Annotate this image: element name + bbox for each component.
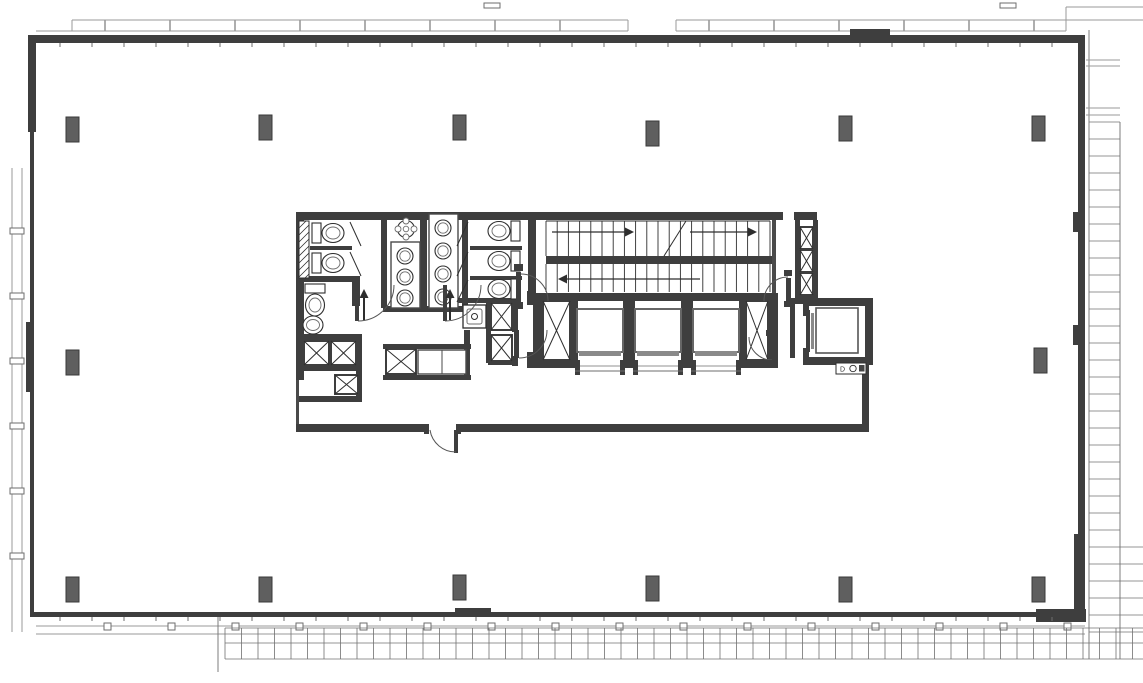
- perimeter-wall: [850, 29, 890, 36]
- perimeter-wall: [1078, 40, 1085, 616]
- structural-column: [66, 117, 79, 142]
- ornate-sink-petal: [403, 234, 409, 240]
- perimeter-wall: [28, 35, 1085, 43]
- perimeter-wall: [30, 612, 1085, 617]
- freight-elevator-door-panel: [806, 310, 810, 352]
- core-wall: [383, 375, 471, 380]
- door-leaf: [786, 278, 791, 301]
- bottom-rail-post: [872, 623, 879, 630]
- core-wall: [296, 424, 869, 432]
- bottom-rail-post: [168, 623, 175, 630]
- left-terrace-post: [10, 293, 24, 299]
- toilet-icon: [488, 280, 510, 299]
- bottom-rail-post: [360, 623, 367, 630]
- toilet-icon: [322, 224, 344, 243]
- toilet-icon: [488, 222, 510, 241]
- door-leaf: [516, 272, 521, 302]
- bottom-rail-post: [1064, 623, 1071, 630]
- structural-column: [1032, 577, 1045, 602]
- bottom-rail-post: [424, 623, 431, 630]
- core-wall-thin: [296, 380, 299, 424]
- freight-elevator-door-panel: [811, 313, 814, 349]
- toilet-tank: [312, 223, 321, 243]
- perimeter-wall: [1073, 212, 1078, 232]
- core-wall: [865, 298, 873, 365]
- toilet-icon: [322, 254, 344, 273]
- ornate-sink-petal: [403, 218, 409, 224]
- wall-opening: [580, 360, 620, 368]
- freight-elevator-cab: [816, 308, 858, 353]
- elevator-door-jamb: [620, 360, 625, 375]
- elevator-door-jamb: [678, 360, 683, 375]
- core-wall: [527, 291, 533, 305]
- core-wall: [681, 301, 693, 360]
- core-wall: [533, 293, 543, 368]
- structural-column: [646, 576, 659, 601]
- perimeter-wall: [28, 35, 36, 132]
- core-wall: [546, 256, 772, 264]
- door-jamb: [784, 301, 792, 307]
- elevator-cab-sill: [637, 351, 679, 356]
- wall-basin-icon: [303, 316, 323, 334]
- door-jamb: [784, 270, 792, 276]
- perimeter-wall: [1073, 325, 1078, 345]
- toilet-tank: [312, 253, 321, 273]
- bottom-rail-post: [936, 623, 943, 630]
- bottom-rail-post: [232, 623, 239, 630]
- elevator-door-jamb: [575, 360, 580, 375]
- core-wall: [623, 301, 635, 360]
- door-jamb: [456, 424, 461, 434]
- bottom-rail-post: [680, 623, 687, 630]
- core-wall: [310, 246, 352, 250]
- structural-column: [453, 575, 466, 600]
- door-jamb: [514, 264, 523, 271]
- structural-column: [259, 577, 272, 602]
- perimeter-wall: [455, 608, 491, 616]
- wall-opening: [696, 360, 736, 368]
- core-wall: [533, 293, 778, 301]
- elevator-cab-sill: [695, 351, 737, 356]
- bottom-rail-post: [552, 623, 559, 630]
- door-leaf: [443, 285, 447, 321]
- perimeter-wall: [1074, 534, 1085, 616]
- mop-sink-icon: [463, 305, 486, 328]
- floor-plan-drawing: D: [0, 0, 1143, 683]
- core-wall: [296, 396, 362, 402]
- structural-column: [259, 115, 272, 140]
- structural-column: [1034, 348, 1047, 373]
- elevator-door-jamb: [736, 360, 741, 375]
- elevator-cab: [693, 309, 739, 352]
- elevator-cab: [577, 309, 623, 352]
- door-leaf: [770, 337, 775, 360]
- door-leaf: [514, 330, 519, 358]
- core-wall: [296, 366, 362, 371]
- wall-opening: [783, 212, 794, 220]
- core-wall: [470, 246, 522, 250]
- bottom-rail-post: [808, 623, 815, 630]
- core-wall: [381, 212, 387, 308]
- structural-column: [66, 577, 79, 602]
- bottom-rail-post: [616, 623, 623, 630]
- elevator-cab: [635, 309, 681, 352]
- core-wall: [528, 212, 536, 300]
- door-jamb: [766, 360, 774, 366]
- structural-column: [839, 116, 852, 141]
- structural-column: [646, 121, 659, 146]
- door-jamb: [766, 330, 774, 336]
- door-leaf: [355, 284, 359, 321]
- elevator-door-jamb: [633, 360, 638, 375]
- elevator-door-jamb: [691, 360, 696, 375]
- left-terrace-post: [10, 228, 24, 234]
- ornate-sink-petal: [395, 226, 401, 232]
- structural-column: [1032, 116, 1045, 141]
- left-terrace-post: [10, 423, 24, 429]
- core-wall: [420, 212, 427, 310]
- bottom-rail-post: [296, 623, 303, 630]
- bottom-rail-post: [104, 623, 111, 630]
- wall-opening: [638, 360, 678, 368]
- ornate-sink-petal: [411, 226, 417, 232]
- bottom-rail-post: [1000, 623, 1007, 630]
- structural-column: [66, 350, 79, 375]
- top-edge-mark: [1000, 3, 1016, 8]
- toilet-icon: [488, 252, 510, 271]
- left-terrace-post: [10, 553, 24, 559]
- structural-column: [453, 115, 466, 140]
- toilet-tank: [305, 284, 325, 293]
- left-terrace-post: [10, 358, 24, 364]
- door-jamb: [514, 302, 523, 309]
- fountain-unit: [859, 365, 865, 372]
- toilet-tank: [511, 221, 520, 241]
- door-jamb: [424, 424, 429, 434]
- core-wall: [296, 212, 817, 220]
- core-wall: [296, 334, 362, 340]
- perimeter-wall: [26, 322, 34, 392]
- toilet-icon: [306, 294, 325, 316]
- wall-opening: [428, 424, 456, 432]
- structural-column: [839, 577, 852, 602]
- bottom-rail-post: [744, 623, 751, 630]
- top-edge-mark: [484, 3, 500, 8]
- floor-plan-page: D: [0, 0, 1143, 683]
- left-terrace-post: [10, 488, 24, 494]
- core-wall: [462, 212, 468, 308]
- core-wall: [803, 298, 873, 306]
- fountain-label: D: [840, 367, 845, 374]
- elevator-cab-sill: [579, 351, 621, 356]
